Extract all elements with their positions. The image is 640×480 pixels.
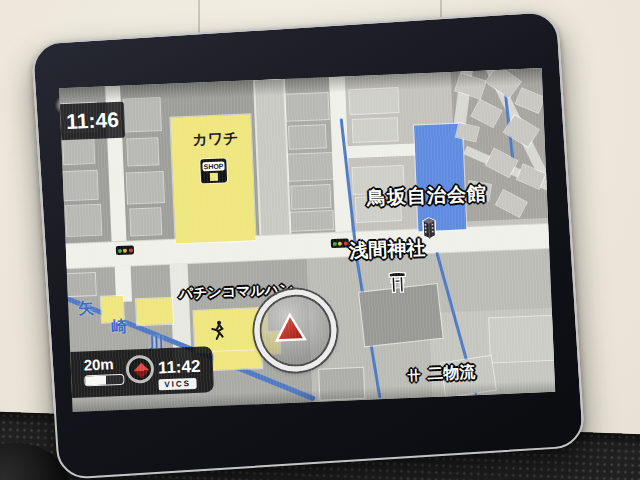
navigation-display-device: カワチ SHOP 鳥坂自治会館 浅間神社 — [31, 10, 585, 480]
building — [291, 185, 330, 209]
building — [127, 138, 158, 165]
clock-display: 11:46 — [60, 102, 125, 141]
car-position-arrow-icon — [272, 311, 309, 348]
building — [127, 172, 164, 203]
vics-compass-icon — [125, 355, 154, 384]
river-name-char: 崎 — [111, 317, 128, 339]
building — [288, 153, 333, 181]
poi-label-kawachi: カワチ — [192, 129, 239, 150]
building — [353, 118, 398, 142]
building — [63, 139, 94, 164]
vics-badge: VICS — [158, 378, 196, 391]
traffic-light-icon — [331, 238, 349, 248]
building — [130, 208, 161, 235]
scale-label[interactable]: 20m — [83, 355, 114, 373]
building — [349, 88, 398, 114]
poi-label-shrine: 浅間神社 — [349, 235, 426, 264]
poi-building-yellow — [136, 298, 173, 325]
building — [124, 98, 161, 131]
building — [286, 93, 329, 121]
status-bar: 20m 11:42 VICS — [70, 346, 214, 398]
poi-label-partial-mark: 卄 — [407, 366, 421, 385]
torii-shrine-icon — [388, 270, 407, 298]
map-viewport[interactable]: カワチ SHOP 鳥坂自治会館 浅間神社 — [59, 68, 555, 412]
poi-label-partial: 二物流 — [427, 362, 476, 385]
traffic-light-icon — [116, 245, 134, 255]
road — [255, 79, 290, 238]
scale-bar[interactable] — [84, 374, 124, 387]
building — [319, 368, 364, 400]
building — [67, 273, 96, 296]
shop-icon-text: SHOP — [202, 161, 224, 171]
building — [63, 171, 98, 200]
building — [66, 205, 101, 236]
river-name-char: 矢 — [78, 298, 95, 320]
poi-label-community-hall: 鳥坂自治会館 — [366, 180, 487, 211]
vics-time: 11:42 — [158, 357, 201, 379]
building — [289, 125, 326, 148]
building — [291, 211, 334, 231]
poi-building-pachinko — [213, 350, 262, 370]
shop-icon: SHOP — [200, 158, 227, 183]
runner-icon — [208, 320, 227, 347]
building — [489, 316, 554, 363]
